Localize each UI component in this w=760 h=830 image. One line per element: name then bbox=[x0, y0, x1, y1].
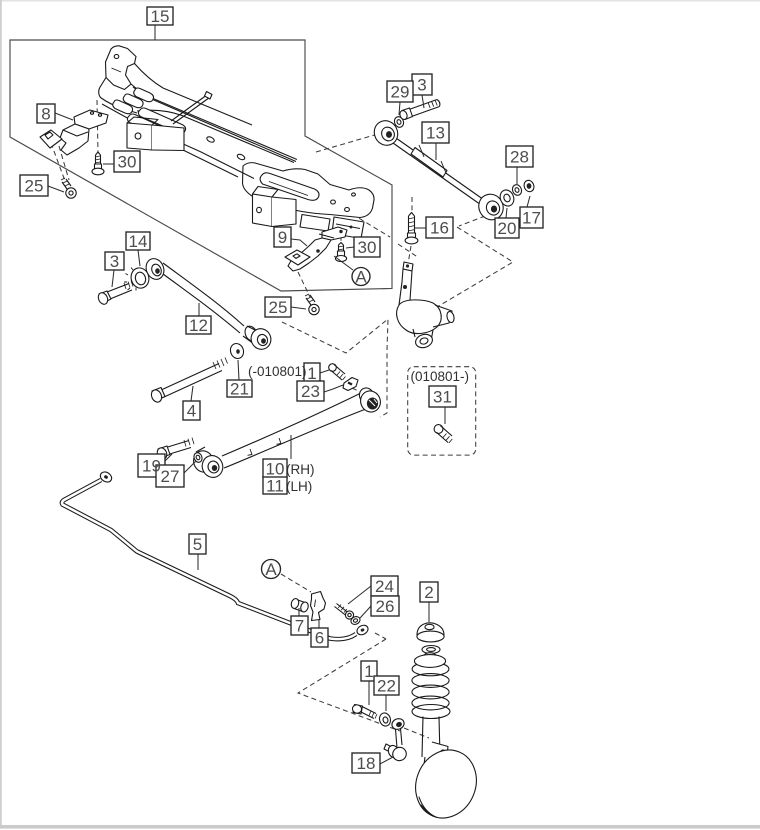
svg-text:28: 28 bbox=[510, 148, 529, 167]
svg-text:8: 8 bbox=[41, 105, 50, 124]
svg-text:25: 25 bbox=[25, 177, 44, 196]
svg-text:6: 6 bbox=[315, 629, 324, 648]
svg-text:29: 29 bbox=[391, 83, 410, 102]
svg-text:(010801-): (010801-) bbox=[411, 369, 470, 384]
svg-text:15: 15 bbox=[151, 7, 170, 26]
svg-text:1: 1 bbox=[364, 662, 373, 681]
svg-text:18: 18 bbox=[357, 754, 376, 773]
svg-text:19: 19 bbox=[142, 457, 161, 476]
svg-text:27: 27 bbox=[161, 467, 180, 486]
svg-text:24: 24 bbox=[375, 577, 394, 596]
svg-text:A: A bbox=[265, 560, 277, 579]
svg-text:30: 30 bbox=[118, 153, 137, 172]
svg-text:13: 13 bbox=[426, 124, 445, 143]
svg-text:11: 11 bbox=[266, 477, 284, 496]
svg-text:3: 3 bbox=[110, 252, 119, 271]
svg-text:(-010801): (-010801) bbox=[248, 364, 307, 379]
svg-text:22: 22 bbox=[377, 677, 396, 696]
svg-text:(LH): (LH) bbox=[286, 479, 312, 494]
svg-text:20: 20 bbox=[498, 219, 517, 238]
svg-text:16: 16 bbox=[430, 219, 449, 238]
svg-text:1: 1 bbox=[307, 364, 316, 383]
svg-text:A: A bbox=[355, 268, 367, 287]
svg-text:(RH): (RH) bbox=[286, 462, 315, 477]
svg-text:21: 21 bbox=[230, 380, 249, 399]
svg-text:7: 7 bbox=[295, 617, 304, 636]
svg-text:30: 30 bbox=[358, 238, 377, 257]
svg-text:14: 14 bbox=[129, 232, 148, 251]
svg-text:3: 3 bbox=[417, 76, 426, 95]
svg-text:23: 23 bbox=[301, 382, 320, 401]
svg-text:26: 26 bbox=[376, 597, 395, 616]
svg-text:17: 17 bbox=[522, 209, 541, 228]
svg-text:9: 9 bbox=[278, 228, 287, 247]
svg-text:5: 5 bbox=[193, 535, 202, 554]
svg-text:2: 2 bbox=[424, 583, 433, 602]
svg-text:4: 4 bbox=[187, 402, 196, 421]
svg-text:25: 25 bbox=[269, 298, 288, 317]
svg-text:12: 12 bbox=[189, 316, 208, 335]
svg-text:31: 31 bbox=[433, 388, 452, 407]
